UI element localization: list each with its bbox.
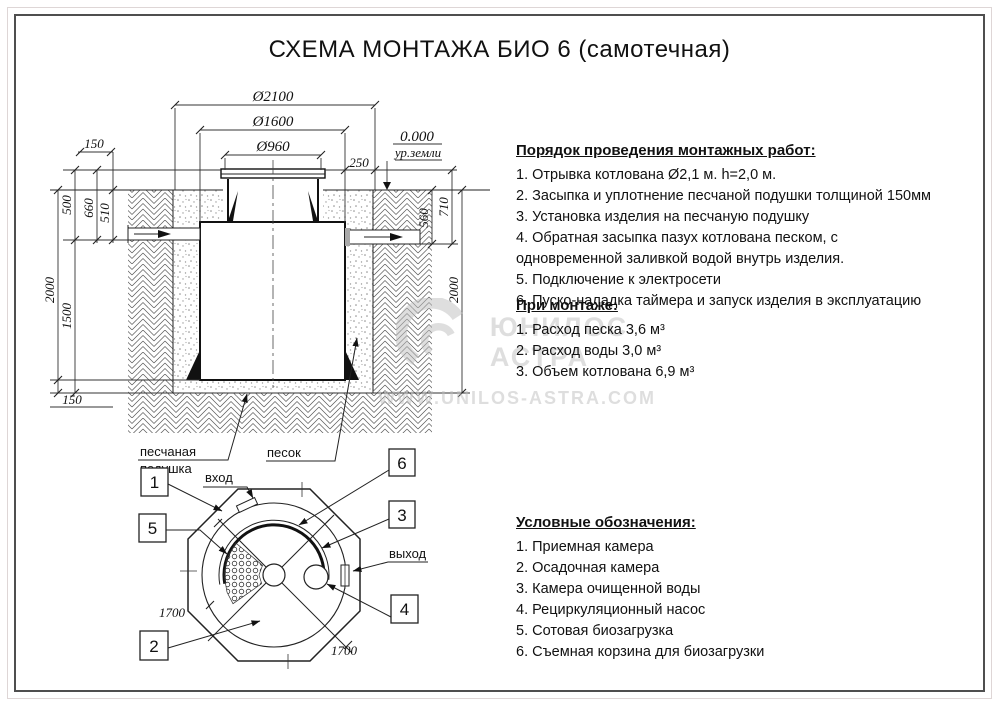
montage-notes: При монтаже: 1. Расход песка 3,6 м³ 2. Р… [516,296,946,383]
install-item: 4. Обратная засыпка пазух котлована песк… [516,228,946,270]
plan-view: 1700 1700 вход выход 1 5 [139,449,428,669]
montage-item: 3. Объем котлована 6,9 м³ [516,362,946,383]
callout-1-num: 1 [150,473,159,492]
install-item: 5. Подключение к электросети [516,270,946,291]
montage-heading: При монтаже: [516,296,946,316]
dim-250: 250 [349,155,369,170]
install-instructions: Порядок проведения монтажных работ: 1. О… [516,141,946,312]
legend-item: 3. Камера очищенной воды [516,579,946,600]
callout-3-num: 3 [397,506,406,525]
dim-dia-tank: Ø1600 [252,114,294,130]
sand-label: песок [267,445,301,460]
install-item: 3. Установка изделия на песчаную подушку [516,207,946,228]
dim-710: 710 [436,197,451,217]
dim-2000-right: 2000 [446,277,461,304]
level-zero: 0.000 [400,129,434,145]
install-heading: Порядок проведения монтажных работ: [516,141,946,161]
install-item: 1. Отрывка котлована Ø2,1 м. h=2,0 м. [516,165,946,186]
legend-item: 1. Приемная камера [516,537,946,558]
outlet-stub [341,562,349,589]
cross-section-view: Ø2100 Ø1600 Ø960 0.000 ур.земли 250 150 … [42,89,490,476]
inlet-label: вход [205,470,233,485]
callout-2-num: 2 [149,637,158,656]
callout-4-num: 4 [400,600,409,619]
dim-560: 560 [416,208,431,228]
montage-item: 2. Расход воды 3,0 м³ [516,341,946,362]
install-list: 1. Отрывка котлована Ø2,1 м. h=2,0 м. 2.… [516,165,946,312]
inlet-pipe [128,225,200,243]
level-ground: ур.земли [393,145,442,160]
install-item: 2. Засыпка и уплотнение песчаной подушки… [516,186,946,207]
dim-1700-bottom: 1700 [331,643,358,658]
legend-item: 4. Рециркуляционный насос [516,600,946,621]
center-shaft [263,564,285,586]
montage-list: 1. Расход песка 3,6 м³ 2. Расход воды 3,… [516,320,946,383]
sand-cushion-label-1: песчаная [140,444,196,459]
montage-item: 1. Расход песка 3,6 м³ [516,320,946,341]
legend-item: 6. Съемная корзина для биозагрузки [516,642,946,663]
legend-list: 1. Приемная камера 2. Осадочная камера 3… [516,537,946,663]
dim-660: 660 [81,198,96,218]
dim-500: 500 [59,195,74,215]
outlet-pipe [345,228,420,246]
dim-150-top: 150 [84,136,104,151]
dim-2000-left: 2000 [42,277,57,304]
dim-1700-left: 1700 [159,605,186,620]
dim-dia-pit: Ø2100 [252,89,294,105]
legend-item: 2. Осадочная камера [516,558,946,579]
callout-5-num: 5 [148,519,157,538]
legend-heading: Условные обозначения: [516,513,946,533]
dim-150-bottom: 150 [62,392,82,407]
dim-510: 510 [97,203,112,223]
dim-1500: 1500 [59,303,74,330]
callout-6-num: 6 [397,454,406,473]
legend-item: 5. Сотовая биозагрузка [516,621,946,642]
dim-dia-neck: Ø960 [255,139,290,155]
page: СХЕМА МОНТАЖА БИО 6 (самотечная) [0,0,999,706]
recirculation-pump [304,565,328,589]
outlet-label: выход [389,546,427,561]
legend: Условные обозначения: 1. Приемная камера… [516,513,946,663]
tank-plan-outline [180,482,360,669]
